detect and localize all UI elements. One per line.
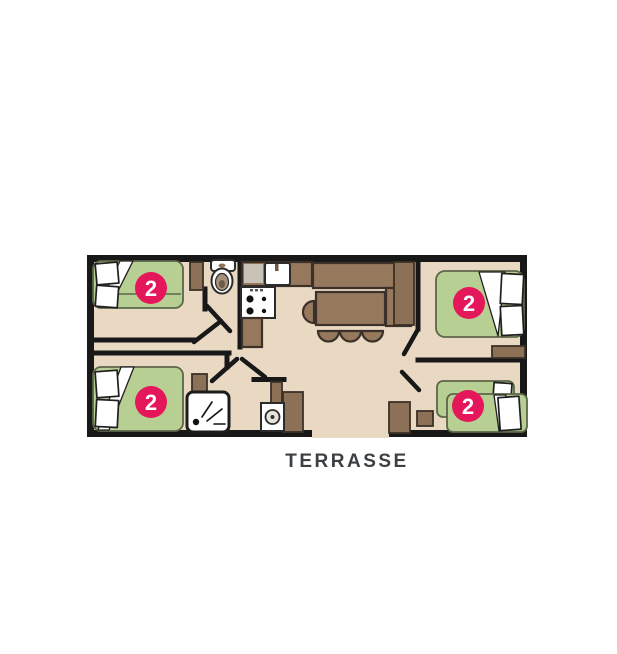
washing-machine-hub <box>271 415 275 419</box>
pillow-icon <box>95 262 119 285</box>
dining-table-icon <box>316 292 385 325</box>
kitchen-worktop <box>244 264 263 283</box>
bedroom-bottom-left: 2 <box>93 367 183 431</box>
shower-icon <box>187 392 229 432</box>
faucet-icon <box>275 264 279 271</box>
wardrobe-icon <box>190 262 203 290</box>
pillow-icon <box>500 273 524 304</box>
capacity-count: 2 <box>462 394 474 419</box>
nightstand-icon <box>417 411 433 426</box>
pillow-icon <box>95 399 118 427</box>
bedroom-top-left: 2 <box>93 261 183 308</box>
floorplan-page: 2 2 2 2 TERRASSE <box>0 0 617 654</box>
utility-cabinet-side <box>283 392 303 432</box>
capacity-count: 2 <box>145 276 157 301</box>
stool-icon <box>340 331 361 342</box>
pillow-icon <box>498 396 521 430</box>
stove-icon <box>241 287 275 318</box>
toilet-button <box>219 264 226 268</box>
capacity-count: 2 <box>145 390 157 415</box>
floorplan-diagram: 2 2 2 2 TERRASSE <box>0 0 617 654</box>
shower-drain <box>193 419 199 425</box>
capacity-count: 2 <box>463 291 475 316</box>
stool-icon <box>318 331 339 341</box>
terrasse-label: TERRASSE <box>285 451 408 472</box>
utility-cabinet-top <box>271 382 282 403</box>
bedroom-shelf <box>492 346 525 358</box>
pillow-icon <box>95 370 119 397</box>
wardrobe-icon <box>394 262 414 325</box>
toilet-seat-shadow <box>219 280 225 288</box>
wardrobe-icon <box>389 402 410 433</box>
bathroom-cabinet <box>192 374 207 393</box>
pillow-icon <box>95 285 118 307</box>
toilet-icon <box>190 260 235 294</box>
stool-icon <box>362 331 383 342</box>
kitchen-cabinet <box>242 318 262 347</box>
pillow-icon <box>500 305 523 335</box>
